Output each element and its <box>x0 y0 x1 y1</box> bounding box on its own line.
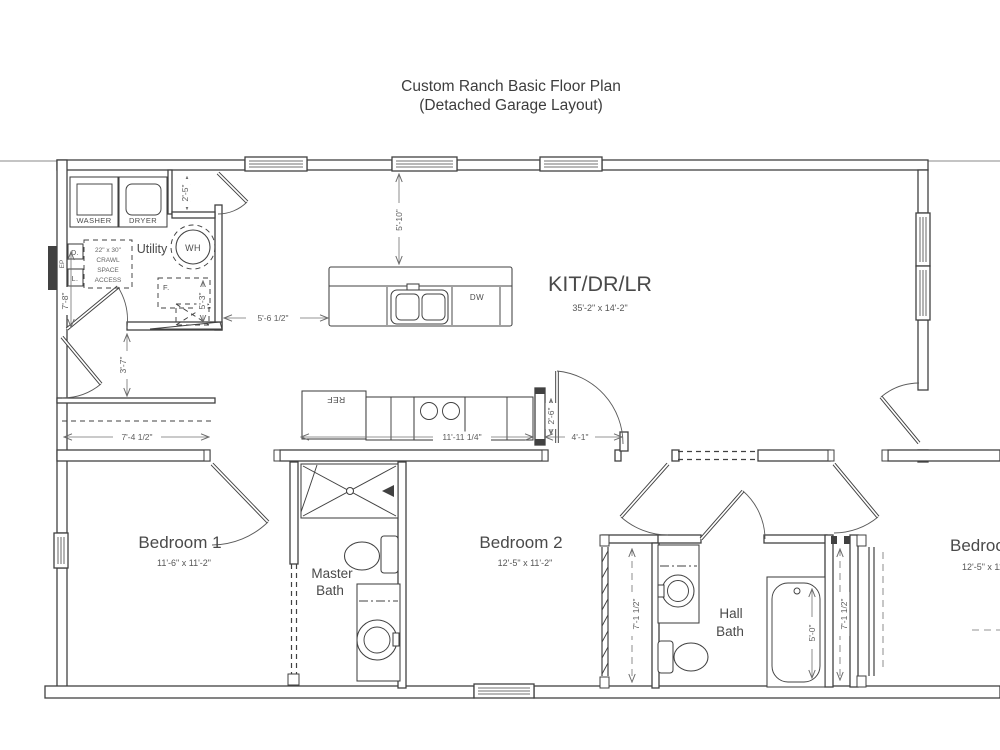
bedroom3-dims: 12'-5" x 11'-2" <box>962 562 1000 572</box>
counter-end-wall <box>535 388 545 445</box>
shower-drain <box>347 488 354 495</box>
closet-jamb <box>600 677 609 688</box>
closet-jamb <box>857 676 866 687</box>
bedroom2-closet-top <box>602 535 659 543</box>
window <box>540 157 602 171</box>
rear-exterior-door <box>881 383 919 443</box>
vanity-sink <box>357 620 397 660</box>
utility-label: Utility <box>137 242 168 256</box>
wall-segment <box>672 450 679 461</box>
plan-title-line2: (Detached Garage Layout) <box>419 97 603 114</box>
doors <box>62 173 919 545</box>
utility-right-wall <box>215 205 222 330</box>
crawl-access-line4: ACCESS <box>95 277 122 284</box>
dim-closet1-width: 7'-4 1/2" <box>121 432 152 442</box>
bedroom2-door <box>621 464 668 535</box>
closet1-top-wall <box>57 398 215 403</box>
hall-bath-label-line1: Hall <box>719 606 742 621</box>
dim-nook-depth: 2'-6" <box>546 408 556 425</box>
dim-counter-run: 11'-11 1/4" <box>442 432 481 442</box>
kitchen-island: DW <box>329 267 512 326</box>
wall-segment <box>280 450 548 461</box>
niche-wall <box>172 212 215 218</box>
door-jamb <box>542 450 548 461</box>
door-jamb <box>274 450 280 461</box>
plan-title-line1: Custom Ranch Basic Floor Plan <box>401 78 621 95</box>
door-jamb <box>828 450 834 461</box>
dim-hall-width: 3'-7" <box>118 357 128 374</box>
wall-segment <box>307 160 392 170</box>
bedroom3-door <box>834 464 878 533</box>
dim-island-clearance: 5'-6 1/2" <box>257 313 288 323</box>
wall-segment <box>457 160 540 170</box>
faucet <box>407 284 419 290</box>
vanity-sink <box>662 575 694 607</box>
electrical-panel-label: EP <box>59 260 66 269</box>
wall-segment <box>602 160 928 170</box>
hallbath-door <box>701 491 765 539</box>
crawl-access-line1: 22" x 30" <box>95 247 122 254</box>
window <box>916 266 930 320</box>
hall-bath-label-line2: Bath <box>716 624 744 639</box>
linen-jamb <box>844 536 850 544</box>
toilet-tank <box>381 536 398 573</box>
linen-right-wall <box>850 535 858 687</box>
toilet-bowl <box>674 643 708 671</box>
wall-segment <box>918 320 928 390</box>
master-bath-label-line2: Bath <box>316 583 344 598</box>
wall-segment <box>57 160 245 170</box>
window <box>245 157 307 171</box>
bedroom1-dims: 11'-6" x 11'-2" <box>157 558 211 568</box>
bedroom3-label: Bedroom 3 <box>950 536 1000 555</box>
hall-bedroom1-door <box>62 337 101 398</box>
dim-closet2-length: 7'-1 1/2" <box>631 598 641 629</box>
hallbath-top-wall <box>658 535 701 543</box>
bedroom1-label: Bedroom 1 <box>138 533 221 552</box>
kitchen-label: KIT/DR/LR <box>548 272 652 296</box>
washer-label: WASHER <box>76 216 111 225</box>
vanity-faucet <box>658 585 664 597</box>
dishwasher-label: DW <box>470 293 484 302</box>
master-bath-label-line1: Master <box>311 566 353 581</box>
bedroom2-dims: 12'-5" x 11'-2" <box>498 558 553 568</box>
room-labels: KIT/DR/LR 35'-2" x 14'-2" Bedroom 1 11'-… <box>138 272 1000 639</box>
window <box>916 213 930 266</box>
wall-segment <box>57 450 210 461</box>
d-box-label: D. <box>71 250 79 257</box>
l-box-label: L. <box>72 276 79 283</box>
wall-segment <box>45 686 474 698</box>
utility-hall-door <box>67 287 127 329</box>
dim-closet3-length: 7'-1 1/2" <box>839 598 849 629</box>
dim-nook-width: 4'-1" <box>572 432 589 442</box>
vanity-faucet <box>393 633 399 646</box>
sink <box>391 290 448 324</box>
bedroom2-label: Bedroom 2 <box>479 533 562 552</box>
niche-wall <box>168 170 172 214</box>
dim-niche-width: 2'-5" <box>180 185 190 202</box>
wall-segment <box>918 170 928 213</box>
floor-plan-drawing: Custom Ranch Basic Floor Plan (Detached … <box>0 0 1000 750</box>
hallbath-right-wall <box>825 535 833 687</box>
dim-furnace-closet: 5'-3" <box>197 293 207 310</box>
kitchen-dims: 35'-2" x 14'-2" <box>572 303 627 313</box>
dim-utility-width: 7'-8" <box>60 293 70 310</box>
door-jamb <box>204 450 210 461</box>
linen-jamb <box>831 536 837 544</box>
wall-stub <box>620 432 628 451</box>
kitchen-counter: REF <box>302 391 533 440</box>
furnace-label: F. <box>163 283 170 292</box>
water-heater-label: WH <box>185 243 201 253</box>
closet-jamb <box>857 535 866 546</box>
refrigerator-label: REF <box>327 395 345 405</box>
window <box>54 533 68 568</box>
crawl-access-line2: CRAWL <box>96 257 120 264</box>
window <box>392 157 457 171</box>
crawl-access-line3: SPACE <box>97 267 119 274</box>
door-jamb <box>882 450 888 461</box>
wall-segment <box>888 450 1000 461</box>
wall-segment <box>57 568 67 690</box>
wall-segment <box>57 160 67 533</box>
wall-jamb <box>288 674 299 685</box>
floor-plan-page: Custom Ranch Basic Floor Plan (Detached … <box>0 0 1000 750</box>
dim-window-to-island: 5'-10" <box>394 209 404 231</box>
electrical-meter <box>48 246 57 290</box>
toilet-tank <box>658 641 673 673</box>
bedroom1-bath-wall <box>290 462 298 564</box>
window <box>474 684 534 698</box>
dim-tub-length: 5'-0" <box>807 625 817 642</box>
hallbath-top-wall <box>764 535 827 543</box>
wall-segment <box>758 450 830 461</box>
dryer-label: DRYER <box>129 216 157 225</box>
closet-jamb <box>600 535 609 546</box>
closet-door-hatch <box>602 551 608 674</box>
